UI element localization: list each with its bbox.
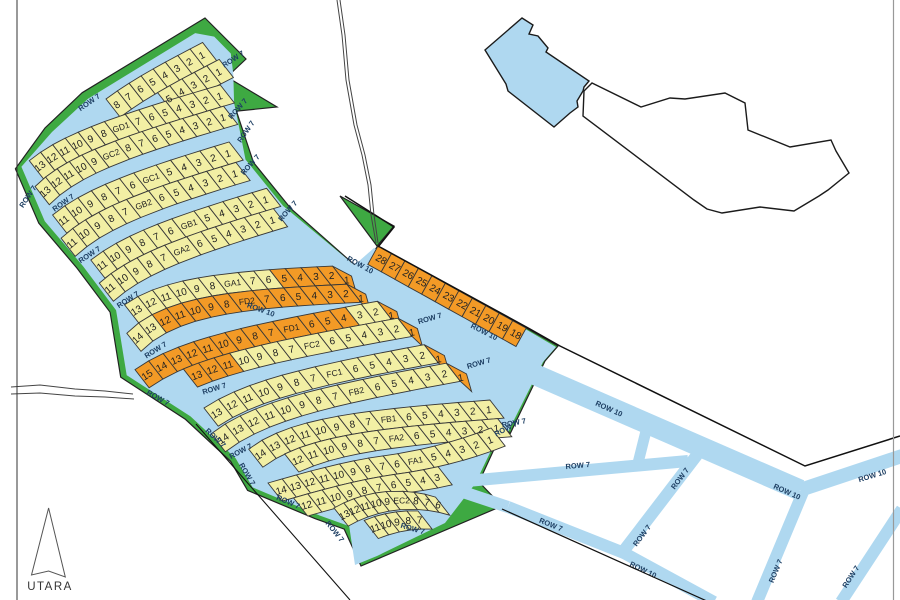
svg-text:3: 3 <box>327 290 334 301</box>
svg-text:UTARA: UTARA <box>27 581 73 593</box>
svg-text:FB1: FB1 <box>380 413 397 425</box>
svg-text:3: 3 <box>313 272 320 283</box>
svg-text:GA1: GA1 <box>224 277 242 289</box>
svg-text:1: 1 <box>358 294 364 305</box>
svg-text:4: 4 <box>297 273 304 284</box>
svg-text:4: 4 <box>311 291 318 302</box>
svg-text:1: 1 <box>344 275 350 286</box>
svg-text:2: 2 <box>343 289 350 300</box>
svg-text:EC2: EC2 <box>393 495 410 505</box>
svg-text:FA2: FA2 <box>388 432 405 444</box>
svg-text:2: 2 <box>329 271 336 282</box>
